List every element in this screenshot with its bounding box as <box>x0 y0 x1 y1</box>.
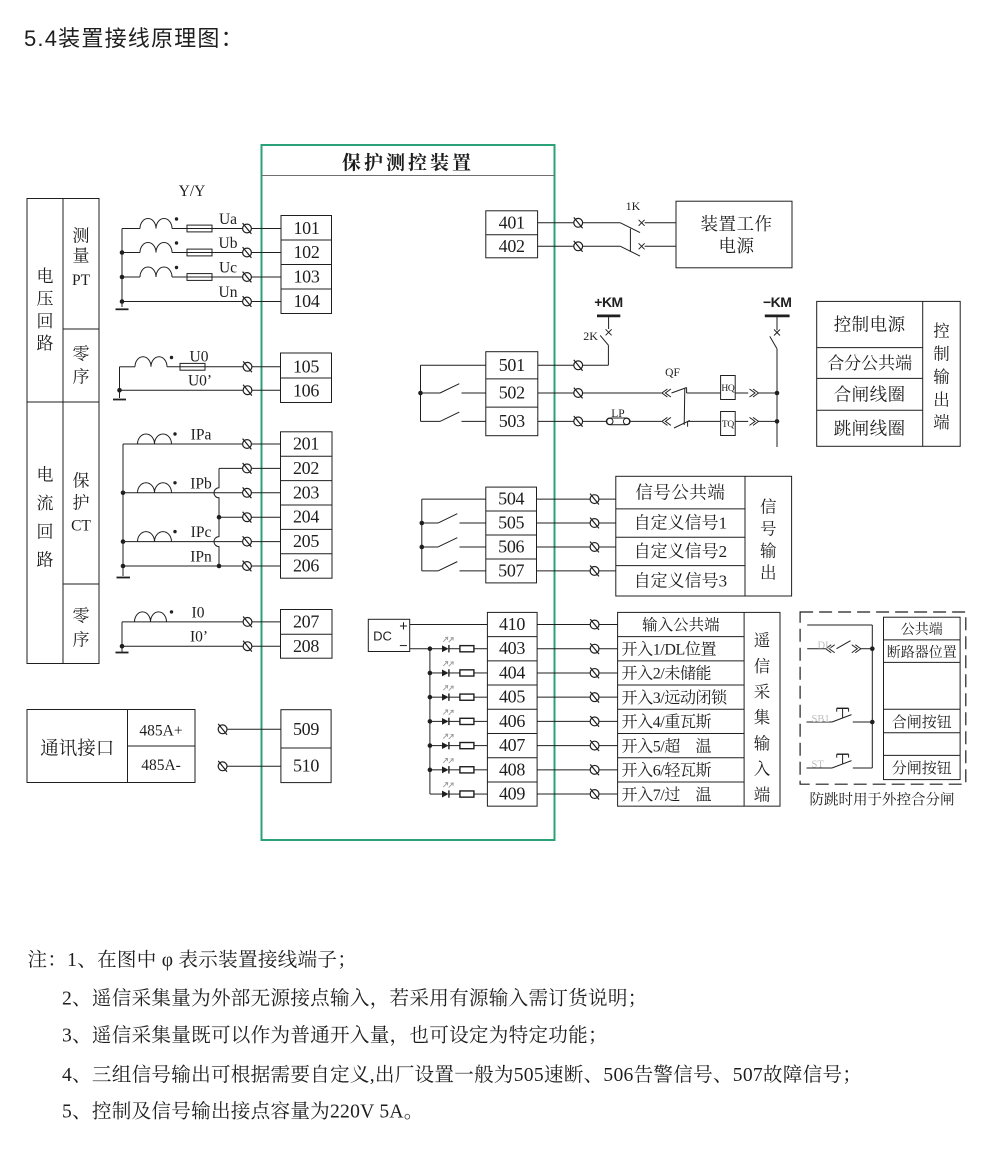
svg-text:503: 503 <box>499 411 525 431</box>
svg-text:Un: Un <box>219 284 238 301</box>
svg-text:回: 回 <box>37 522 54 541</box>
svg-text:零: 零 <box>73 607 90 626</box>
svg-text:通讯接口: 通讯接口 <box>40 739 114 760</box>
svg-text:104: 104 <box>293 291 319 311</box>
svg-text:103: 103 <box>293 267 319 287</box>
svg-text:401: 401 <box>499 212 525 232</box>
svg-text:跳闸线圈: 跳闸线圈 <box>834 419 906 439</box>
svg-text:485A+: 485A+ <box>139 722 182 739</box>
svg-text:−: − <box>399 639 407 655</box>
svg-text:IPb: IPb <box>190 475 212 492</box>
svg-text:路: 路 <box>37 334 54 353</box>
svg-text:出: 出 <box>760 564 777 583</box>
svg-text:205: 205 <box>293 531 319 551</box>
svg-text:IPc: IPc <box>191 524 212 541</box>
svg-text:403: 403 <box>499 638 525 658</box>
svg-text:防跳时用于外控合分闸: 防跳时用于外控合分闸 <box>810 792 955 809</box>
svg-text:402: 402 <box>499 236 525 256</box>
svg-text:集: 集 <box>754 708 771 727</box>
svg-text:DC: DC <box>373 628 392 643</box>
svg-text:注：1、在图中 φ 表示装置接线端子；: 注：1、在图中 φ 表示装置接线端子； <box>28 949 358 971</box>
svg-text:106: 106 <box>293 381 319 401</box>
svg-text:控制电源: 控制电源 <box>834 315 906 335</box>
svg-text:Uc: Uc <box>219 260 237 277</box>
svg-text:TQ: TQ <box>722 420 735 430</box>
svg-text:SB1: SB1 <box>812 714 830 725</box>
svg-text:Ua: Ua <box>219 211 237 228</box>
svg-text:电: 电 <box>37 466 54 485</box>
svg-text:采: 采 <box>754 683 771 702</box>
svg-text:开入1/DL位置: 开入1/DL位置 <box>622 640 717 658</box>
svg-text:105: 105 <box>293 356 319 376</box>
svg-text:407: 407 <box>499 735 525 755</box>
svg-text:485A-: 485A- <box>141 757 181 774</box>
svg-text:测: 测 <box>73 227 90 246</box>
svg-text:信号公共端: 信号公共端 <box>635 482 725 502</box>
svg-text:5、控制及信号输出接点容量为220V 5A。: 5、控制及信号输出接点容量为220V 5A。 <box>62 1101 424 1123</box>
svg-text:开入6/轻瓦斯: 开入6/轻瓦斯 <box>622 762 712 780</box>
svg-text:自定义信号2: 自定义信号2 <box>634 542 728 561</box>
svg-text:装置工作: 装置工作 <box>701 214 773 234</box>
svg-text:+: + <box>399 619 407 635</box>
svg-text:101: 101 <box>293 218 319 238</box>
svg-text:I0: I0 <box>192 604 205 621</box>
svg-text:QF: QF <box>665 367 680 379</box>
svg-text:开入2/未储能: 开入2/未储能 <box>622 665 712 683</box>
svg-text:405: 405 <box>499 687 525 707</box>
svg-text:零: 零 <box>73 345 90 364</box>
svg-text:201: 201 <box>293 434 319 454</box>
svg-text:开入3/远动闭锁: 开入3/远动闭锁 <box>622 688 729 707</box>
svg-text:3、遥信采集量既可以作为普通开入量，也可设定为特定功能；: 3、遥信采集量既可以作为普通开入量，也可设定为特定功能； <box>62 1025 608 1047</box>
svg-text:IPa: IPa <box>191 427 212 444</box>
svg-text:自定义信号1: 自定义信号1 <box>634 514 728 533</box>
svg-text:输入公共端: 输入公共端 <box>642 616 720 634</box>
svg-text:CT: CT <box>71 518 91 535</box>
svg-text:ST: ST <box>812 760 825 771</box>
svg-text:路: 路 <box>37 551 54 570</box>
svg-text:208: 208 <box>293 636 319 656</box>
svg-text:509: 509 <box>293 719 319 739</box>
svg-text:PT: PT <box>72 272 91 289</box>
svg-text:输: 输 <box>933 367 950 386</box>
svg-text:102: 102 <box>293 242 319 262</box>
svg-text:信: 信 <box>754 657 771 676</box>
svg-text:开入5/超 温: 开入5/超 温 <box>622 736 712 755</box>
svg-text:输: 输 <box>760 542 777 561</box>
svg-text:202: 202 <box>293 458 319 478</box>
svg-text:HQ: HQ <box>721 384 735 394</box>
svg-text:电源: 电源 <box>719 236 755 256</box>
svg-text:开入4/重瓦斯: 开入4/重瓦斯 <box>622 713 712 731</box>
svg-text:分闸按钮: 分闸按钮 <box>892 760 952 777</box>
svg-text:开入7/过 温: 开入7/过 温 <box>622 786 712 804</box>
svg-text:410: 410 <box>499 614 525 634</box>
svg-text:501: 501 <box>499 355 525 375</box>
svg-text:−KM: −KM <box>763 294 791 310</box>
svg-text:204: 204 <box>293 507 319 527</box>
svg-text:408: 408 <box>499 759 525 779</box>
svg-text:510: 510 <box>293 756 319 776</box>
svg-text:U0: U0 <box>190 349 209 366</box>
svg-text:流: 流 <box>37 494 54 513</box>
svg-text:505: 505 <box>498 513 524 533</box>
svg-text:入: 入 <box>754 760 771 779</box>
svg-text:保护测控装置: 保护测控装置 <box>342 151 474 174</box>
svg-text:制: 制 <box>933 345 950 364</box>
svg-text:+KM: +KM <box>594 294 622 310</box>
svg-text:合闸按钮: 合闸按钮 <box>892 714 952 731</box>
svg-text:U0’: U0’ <box>188 373 212 390</box>
svg-text:1K: 1K <box>626 199 641 213</box>
svg-text:信: 信 <box>760 498 777 517</box>
svg-text:序: 序 <box>73 368 90 387</box>
svg-text:护: 护 <box>73 494 90 513</box>
svg-text:DL: DL <box>818 641 832 652</box>
svg-text:4、三组信号输出可根据需要自定义,出厂设置一般为505速断、: 4、三组信号输出可根据需要自定义,出厂设置一般为505速断、506告警信号、50… <box>62 1064 862 1086</box>
svg-text:I0’: I0’ <box>190 629 208 646</box>
svg-text:502: 502 <box>499 383 525 403</box>
svg-text:端: 端 <box>754 785 771 804</box>
svg-text:LP: LP <box>611 408 624 420</box>
svg-text:207: 207 <box>293 612 319 632</box>
svg-text:电: 电 <box>37 267 54 286</box>
svg-text:409: 409 <box>499 784 525 804</box>
svg-text:2K: 2K <box>583 329 598 343</box>
svg-text:回: 回 <box>37 312 54 331</box>
svg-text:506: 506 <box>498 536 524 556</box>
svg-text:206: 206 <box>293 556 319 576</box>
svg-text:IPn: IPn <box>190 549 212 566</box>
svg-text:406: 406 <box>499 711 525 731</box>
svg-text:保: 保 <box>73 472 90 491</box>
svg-text:507: 507 <box>498 560 524 580</box>
svg-text:压: 压 <box>37 289 54 308</box>
svg-text:号: 号 <box>760 520 777 539</box>
svg-text:404: 404 <box>499 662 525 682</box>
svg-text:Y/Y: Y/Y <box>179 183 206 200</box>
svg-text:出: 出 <box>933 390 950 409</box>
svg-text:合闸线圈: 合闸线圈 <box>834 385 906 405</box>
svg-text:Ub: Ub <box>219 235 238 252</box>
svg-text:端: 端 <box>933 413 950 432</box>
svg-text:合分公共端: 合分公共端 <box>827 354 912 373</box>
svg-text:控: 控 <box>933 322 950 341</box>
svg-text:自定义信号3: 自定义信号3 <box>634 572 728 591</box>
svg-text:输: 输 <box>754 734 771 753</box>
svg-text:203: 203 <box>293 482 319 502</box>
svg-text:量: 量 <box>73 247 90 266</box>
svg-text:遥: 遥 <box>754 631 771 650</box>
svg-text:公共端: 公共端 <box>901 621 943 638</box>
svg-text:2、遥信采集量为外部无源接点输入，若采用有源输入需订货说明；: 2、遥信采集量为外部无源接点输入，若采用有源输入需订货说明； <box>62 988 648 1010</box>
svg-text:断路器位置: 断路器位置 <box>887 645 957 661</box>
svg-text:504: 504 <box>498 489 524 509</box>
svg-text:序: 序 <box>73 631 90 650</box>
svg-text:5.4装置接线原理图：: 5.4装置接线原理图： <box>24 26 244 51</box>
